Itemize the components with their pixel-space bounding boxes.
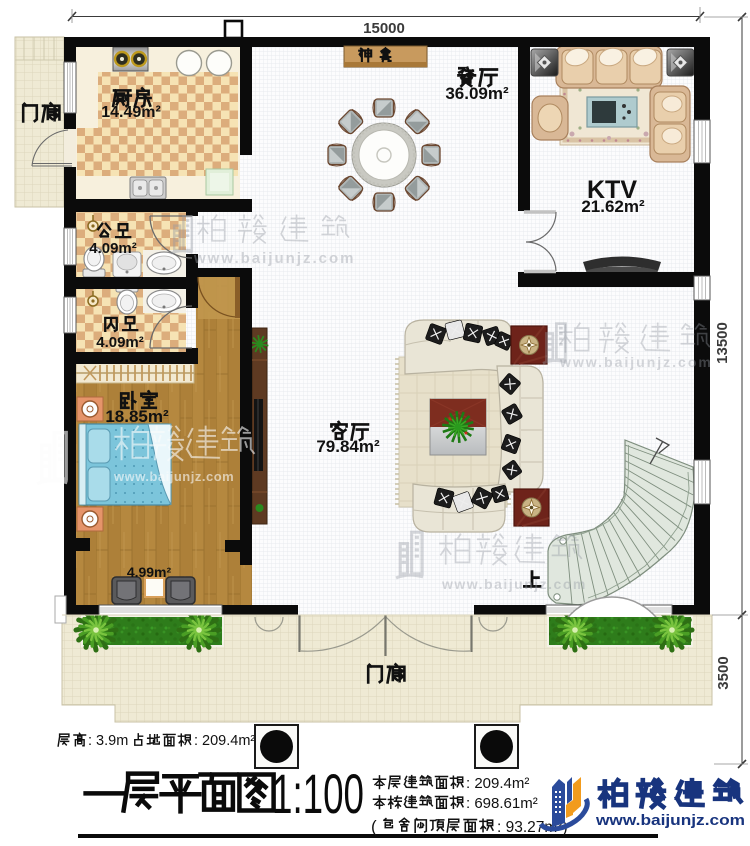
svg-text:www.baijunjz.com: www.baijunjz.com xyxy=(559,354,713,370)
svg-text:3500: 3500 xyxy=(715,656,732,689)
svg-text:www.baijunjz.com: www.baijunjz.com xyxy=(441,576,587,592)
svg-text:15000: 15000 xyxy=(363,20,405,37)
svg-text:13500: 13500 xyxy=(714,322,731,364)
svg-text:www.baijunjz.com: www.baijunjz.com xyxy=(113,469,234,484)
svg-text:: 698.61m²: : 698.61m² xyxy=(466,795,538,812)
svg-text:(: ( xyxy=(371,817,377,836)
svg-text:79.84m²: 79.84m² xyxy=(316,437,380,456)
svg-text:4.09m²: 4.09m² xyxy=(96,334,144,351)
svg-text:4.09m²: 4.09m² xyxy=(89,240,137,257)
svg-text:21.62m²: 21.62m² xyxy=(581,197,645,216)
svg-text:36.09m²: 36.09m² xyxy=(445,84,509,103)
svg-text:: 3.9m: : 3.9m xyxy=(88,733,128,749)
svg-text:4.99m²: 4.99m² xyxy=(127,564,172,580)
svg-text:14.49m²: 14.49m² xyxy=(101,104,161,121)
svg-text:www.baijunjz.com: www.baijunjz.com xyxy=(595,812,745,829)
svg-text:18.85m²: 18.85m² xyxy=(105,407,169,426)
svg-text:: 209.4m²: : 209.4m² xyxy=(194,733,255,749)
svg-text:1:100: 1:100 xyxy=(272,762,364,825)
svg-text:www.baijunjz.com: www.baijunjz.com xyxy=(193,250,355,267)
svg-text:: 209.4m²: : 209.4m² xyxy=(466,775,529,792)
